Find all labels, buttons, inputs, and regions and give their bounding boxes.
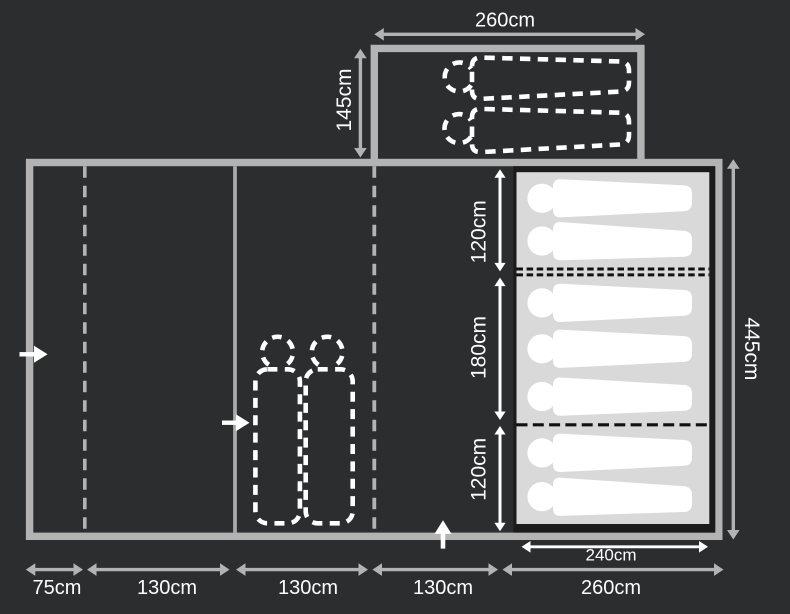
- svg-text:260cm: 260cm: [475, 10, 535, 32]
- svg-text:75cm: 75cm: [33, 577, 82, 599]
- svg-text:260cm: 260cm: [581, 577, 641, 599]
- svg-text:445cm: 445cm: [740, 317, 763, 380]
- svg-text:130cm: 130cm: [137, 577, 197, 599]
- svg-text:130cm: 130cm: [278, 577, 338, 599]
- svg-text:240cm: 240cm: [585, 546, 636, 565]
- svg-text:145cm: 145cm: [333, 68, 356, 131]
- svg-text:120cm: 120cm: [468, 200, 491, 263]
- svg-text:180cm: 180cm: [468, 316, 491, 379]
- svg-text:120cm: 120cm: [468, 438, 491, 501]
- svg-text:130cm: 130cm: [413, 577, 473, 599]
